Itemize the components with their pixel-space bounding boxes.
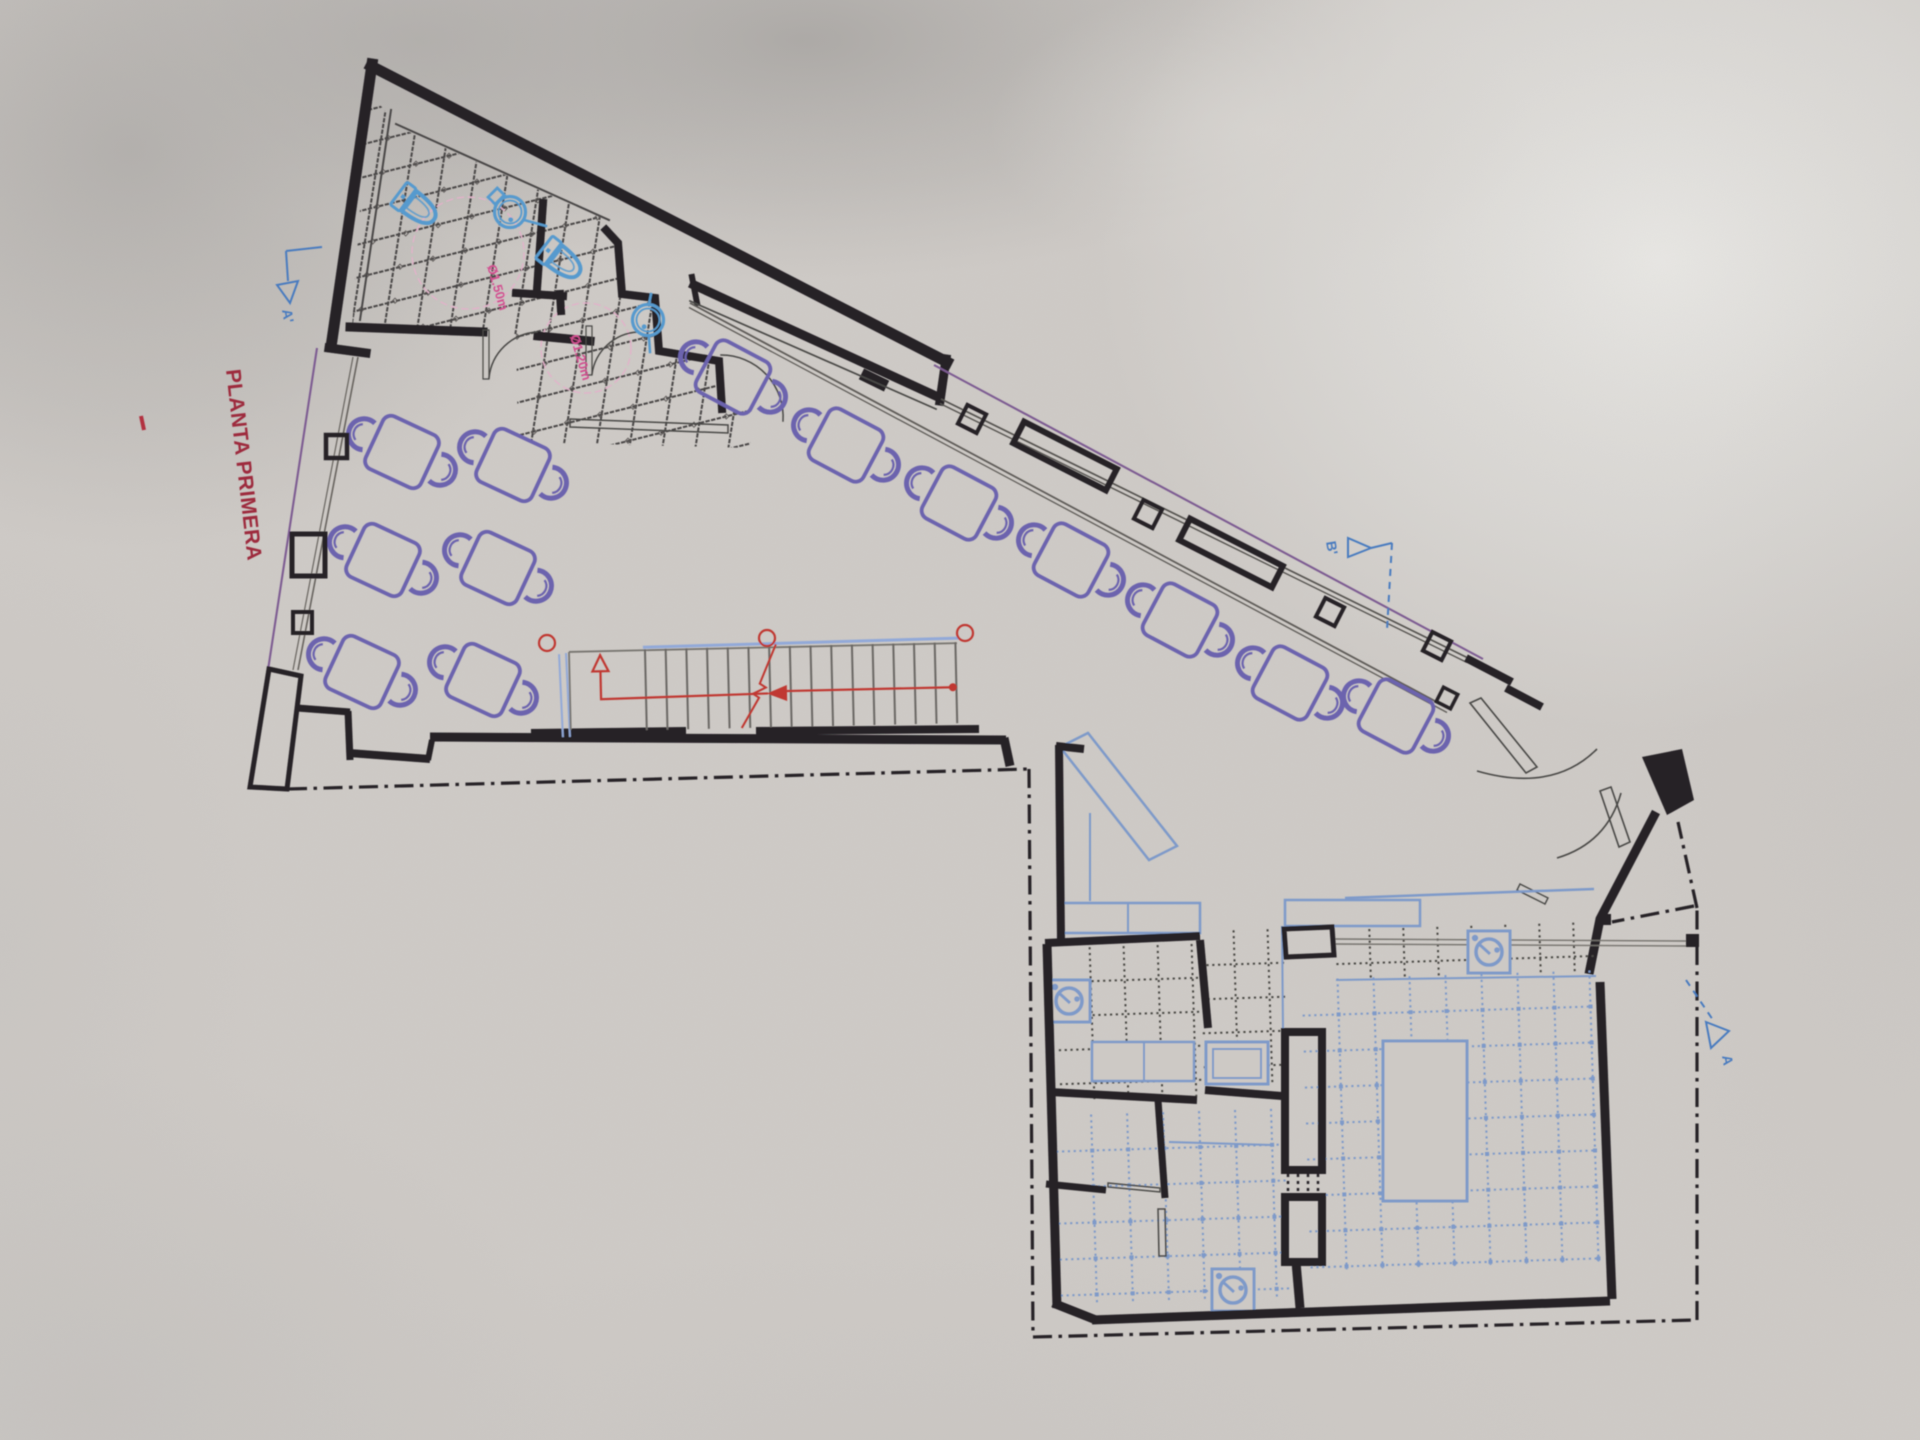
svg-text:B': B' — [1323, 540, 1341, 556]
svg-text:A': A' — [279, 308, 297, 324]
